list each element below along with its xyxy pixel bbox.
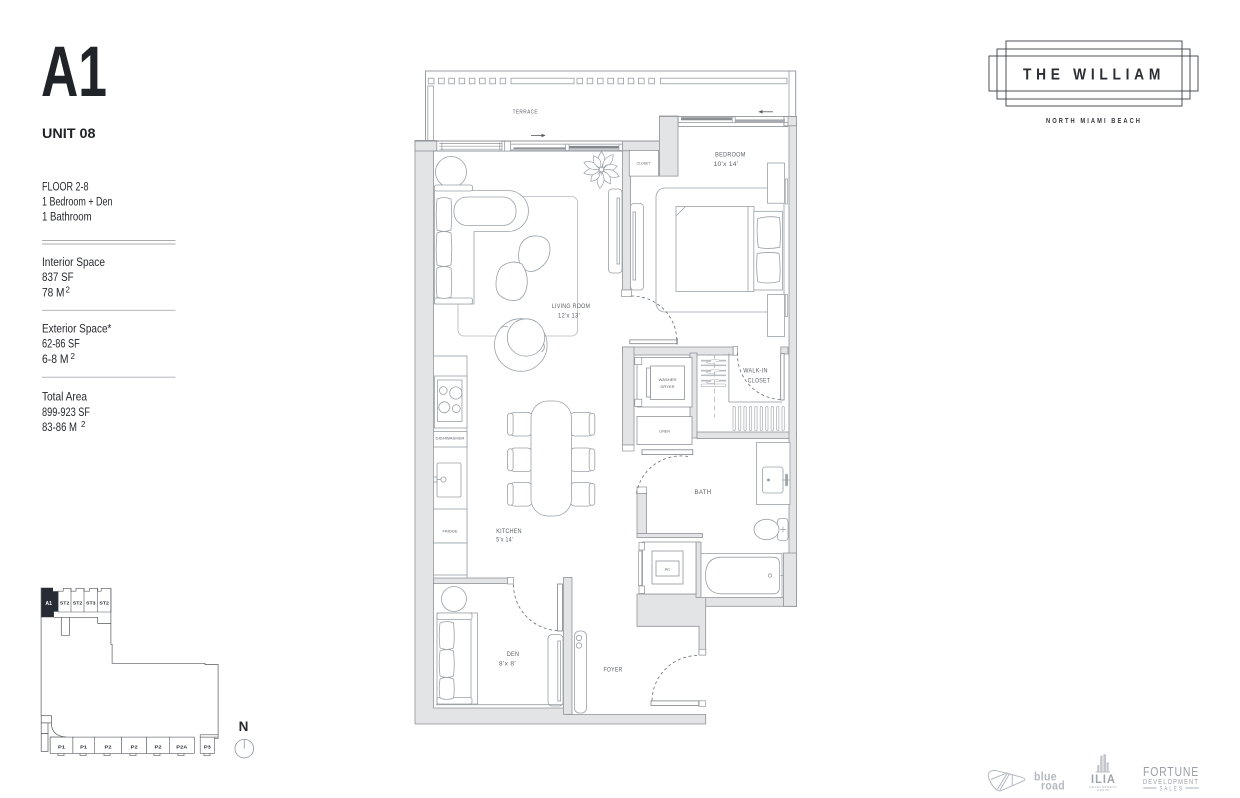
svg-text:road: road (1041, 781, 1065, 793)
svg-text:Interior Space: Interior Space (42, 255, 105, 269)
svg-text:THE WILLIAM: THE WILLIAM (1023, 67, 1165, 84)
svg-text:FOYER: FOYER (604, 667, 623, 674)
svg-text:S A L E S: S A L E S (1160, 785, 1183, 792)
svg-text:8’x 8’: 8’x 8’ (499, 661, 516, 668)
svg-text:12’x 13’: 12’x 13’ (558, 313, 580, 320)
svg-text:83-86 M: 83-86 M (42, 420, 77, 434)
svg-text:DISHWASHER: DISHWASHER (436, 437, 466, 441)
svg-text:CLOSET: CLOSET (637, 162, 652, 166)
svg-text:A1: A1 (45, 601, 52, 607)
svg-text:2: 2 (66, 285, 71, 294)
svg-text:CLOSET: CLOSET (748, 377, 771, 384)
svg-text:Total Area: Total Area (42, 390, 87, 404)
svg-text:TERRACE: TERRACE (513, 110, 538, 116)
svg-text:ST2: ST2 (99, 600, 109, 605)
svg-text:A1: A1 (41, 33, 107, 112)
svg-text:AC: AC (665, 568, 671, 572)
svg-text:FLOOR 2-8: FLOOR 2-8 (42, 179, 89, 193)
svg-text:P1: P1 (58, 745, 66, 750)
svg-text:LINEN: LINEN (659, 430, 670, 434)
svg-text:LIVING ROOM: LIVING ROOM (552, 303, 591, 310)
svg-text:899-923 SF: 899-923 SF (42, 405, 90, 419)
svg-text:2: 2 (71, 352, 76, 361)
svg-text:P1: P1 (80, 745, 88, 750)
svg-text:837 SF: 837 SF (42, 270, 74, 284)
svg-text:GROUP: GROUP (1097, 788, 1110, 792)
svg-text:UNIT 08: UNIT 08 (42, 126, 96, 141)
svg-text:1 Bedroom + Den: 1 Bedroom + Den (42, 195, 113, 209)
svg-text:P2: P2 (155, 745, 163, 750)
svg-text:NORTH MIAMI BEACH: NORTH MIAMI BEACH (1046, 116, 1142, 125)
svg-text:DEN: DEN (507, 651, 520, 658)
svg-text:10’x 14’: 10’x 14’ (714, 161, 739, 168)
svg-text:Exterior Space*: Exterior Space* (42, 322, 112, 336)
svg-text:2: 2 (81, 420, 86, 429)
svg-text:KITCHEN: KITCHEN (496, 528, 522, 535)
svg-text:5’x 14’: 5’x 14’ (496, 537, 513, 544)
svg-text:ST2: ST2 (73, 600, 83, 605)
svg-text:BEDROOM: BEDROOM (715, 152, 746, 159)
svg-text:WALK-IN: WALK-IN (743, 368, 768, 375)
svg-text:P3: P3 (204, 745, 212, 750)
svg-text:1 Bathroom: 1 Bathroom (42, 210, 92, 224)
svg-text:BATH: BATH (695, 489, 712, 496)
svg-text:N: N (239, 719, 249, 734)
svg-text:P2: P2 (105, 745, 113, 750)
svg-text:P2: P2 (131, 745, 139, 750)
svg-text:WASHER: WASHER (659, 378, 678, 382)
svg-text:P2A: P2A (176, 745, 188, 750)
svg-text:DRYER: DRYER (661, 385, 676, 389)
svg-text:6-8 M: 6-8 M (42, 352, 69, 366)
svg-text:78 M: 78 M (42, 285, 65, 299)
svg-text:FRIDGE: FRIDGE (443, 530, 459, 534)
svg-text:ST3: ST3 (86, 600, 96, 605)
svg-text:62-86 SF: 62-86 SF (42, 337, 80, 351)
svg-text:ST2: ST2 (60, 600, 70, 605)
